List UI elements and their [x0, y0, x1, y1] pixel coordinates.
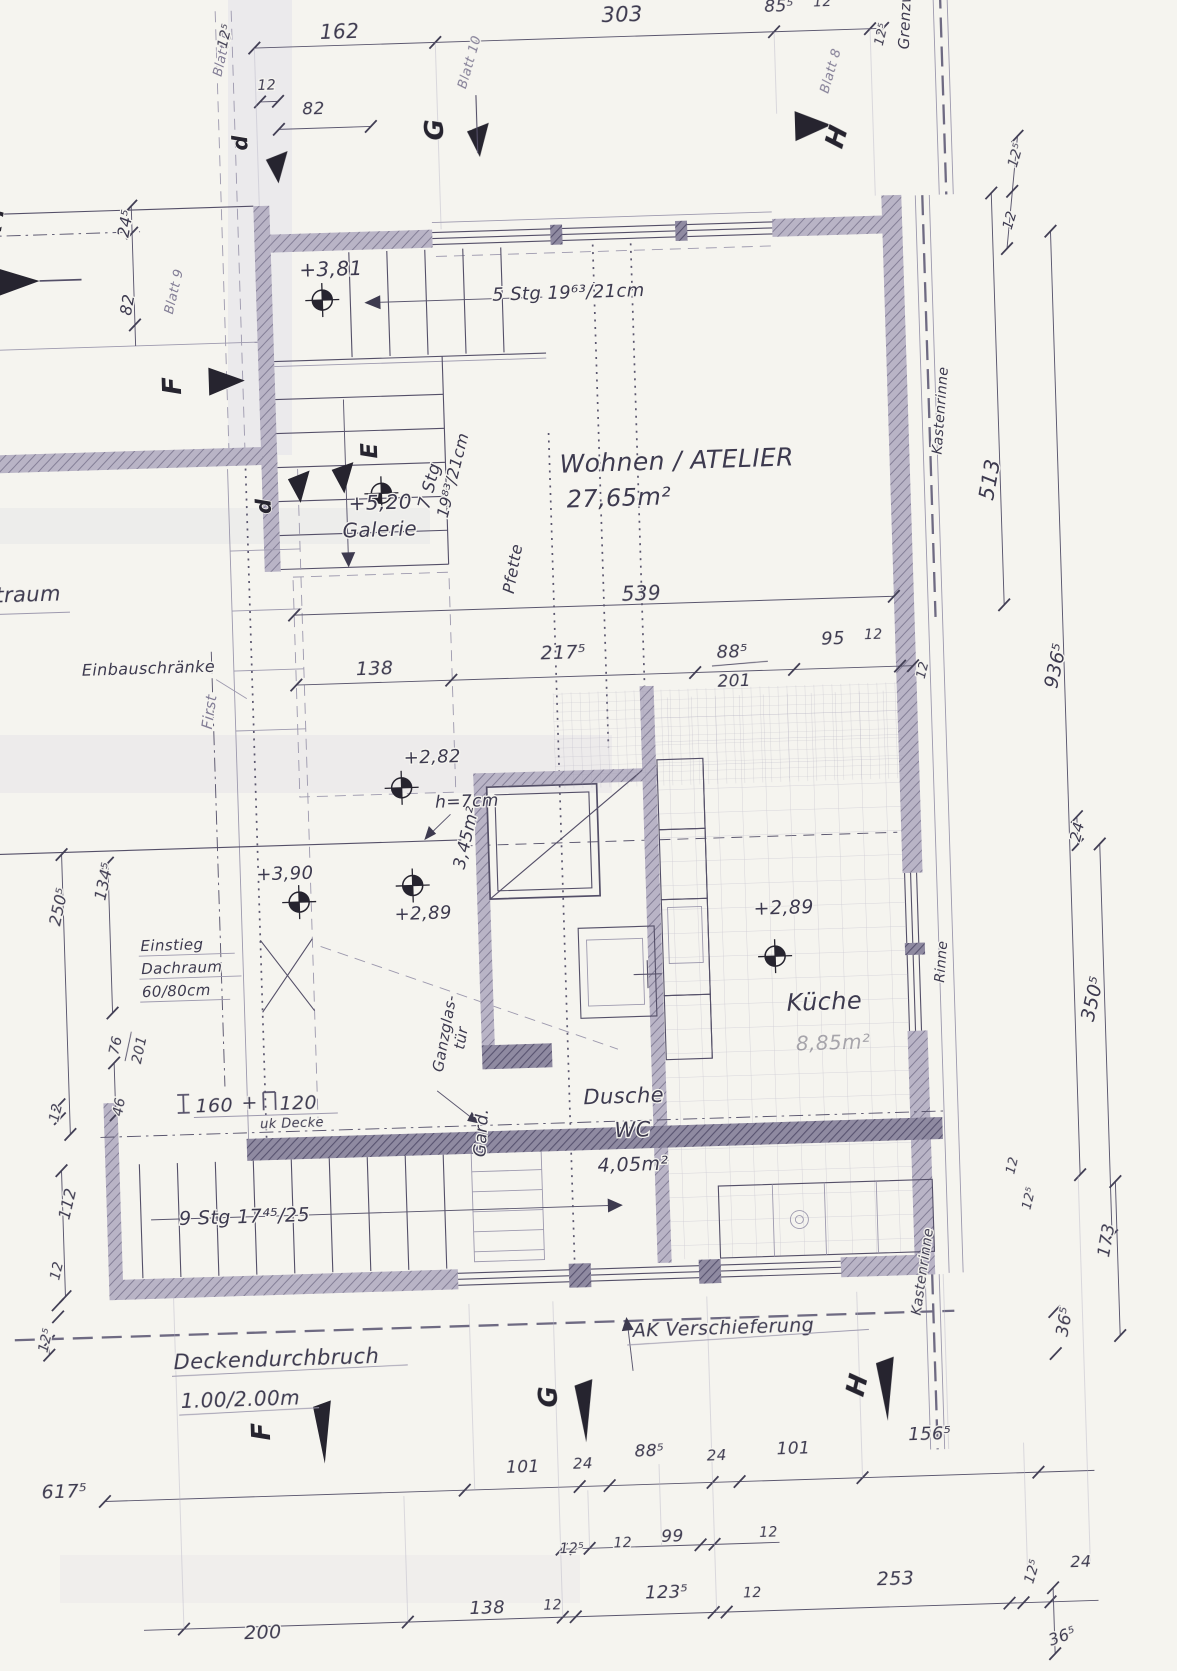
level-390: +3,90	[256, 863, 314, 886]
dim: 82	[302, 99, 325, 120]
dim: 95	[821, 628, 845, 650]
wc-label: WC	[614, 1117, 651, 1142]
traum-label: traum	[0, 581, 61, 607]
dim: 24	[706, 1446, 726, 1465]
wohnen-area: 27,65m²	[566, 482, 671, 513]
beam-size-1: 160	[195, 1094, 233, 1117]
section-letter-d-mid: d	[251, 498, 275, 515]
dim: 12	[864, 627, 883, 644]
dim: 88⁵	[716, 641, 748, 663]
section-letter-d-top: d	[228, 134, 252, 151]
dusche-label: Dusche	[583, 1083, 664, 1110]
rinne-label: Rinne	[932, 940, 951, 983]
dim: 156⁵	[908, 1423, 952, 1445]
beam-sublabel: uk Decke	[260, 1115, 324, 1132]
kueche-label: Küche	[786, 986, 862, 1016]
garderobe-label: Gard.	[470, 1108, 493, 1158]
dim: 101	[506, 1457, 540, 1478]
dim: 201	[717, 671, 751, 692]
level-289-kueche: +2,89	[753, 896, 814, 920]
dim: 217⁵	[540, 641, 586, 664]
floor-plan-canvas: C d G H F E d F G H Blatt 5 Blatt 9 Blat…	[0, 0, 1177, 1671]
dim: 539	[621, 581, 661, 606]
dim: 12	[613, 1535, 632, 1552]
einstieg-line1: Einstieg	[140, 935, 204, 955]
section-letter-f-bottom: F	[247, 1422, 278, 1441]
stair-note-bottom: 9 Stg 17⁴⁵/25	[179, 1204, 311, 1230]
hoehe-label: h=7cm	[435, 791, 499, 813]
section-letter-f-left: F	[158, 376, 189, 395]
dim: 99	[661, 1526, 684, 1547]
dim: 303	[601, 2, 643, 27]
level-282: +2,82	[403, 746, 461, 769]
dim: 123⁵	[645, 1581, 689, 1603]
grenzwand-label: Grenzwand	[895, 0, 916, 50]
dim: 101	[776, 1438, 810, 1459]
section-letter-e: E	[357, 442, 383, 459]
dim: 24	[1070, 1552, 1092, 1572]
dusche-area: 4,05m²	[597, 1153, 668, 1177]
dim: 162	[319, 19, 359, 44]
galerie-label: Galerie	[342, 516, 417, 542]
dim: 82	[116, 293, 138, 317]
dim: 12	[257, 77, 276, 94]
tiled-wall-strip	[553, 682, 904, 789]
scanned-floor-plan-sheet: C d G H F E d F G H Blatt 5 Blatt 9 Blat…	[0, 0, 1177, 1671]
dim: 138	[356, 657, 394, 680]
level-381: +3,81	[299, 256, 363, 282]
dim: 253	[876, 1567, 914, 1590]
dim: 88⁵	[634, 1441, 664, 1462]
dim: 138	[469, 1597, 505, 1619]
paper-background	[0, 0, 1177, 1671]
section-letter-g-bottom: G	[534, 1385, 565, 1408]
dim: 12⁵	[559, 1540, 584, 1557]
beam-plus: +	[241, 1091, 258, 1114]
dim: 200	[244, 1621, 282, 1644]
dim: 24	[573, 1454, 593, 1473]
deckendurchbruch-line2: 1.00/2.00m	[180, 1385, 300, 1413]
dim: 46	[110, 1096, 129, 1117]
beam-size-2: 120	[279, 1092, 317, 1115]
dim: 12	[759, 1524, 778, 1541]
galerie-level: +5,20	[348, 489, 412, 515]
section-letter-g-top: G	[420, 118, 451, 141]
level-289-bad: +2,89	[394, 902, 452, 925]
dim: 617⁵	[41, 1480, 87, 1503]
kueche-area: 8,85m²	[795, 1029, 870, 1055]
einstieg-line3: 60/80cm	[142, 981, 211, 1001]
dim: 85⁵	[764, 0, 794, 17]
einstieg-line2: Dachraum	[141, 958, 223, 979]
dim: 12	[743, 1585, 762, 1602]
dim: 12	[813, 0, 832, 10]
dim: 12	[543, 1597, 562, 1614]
